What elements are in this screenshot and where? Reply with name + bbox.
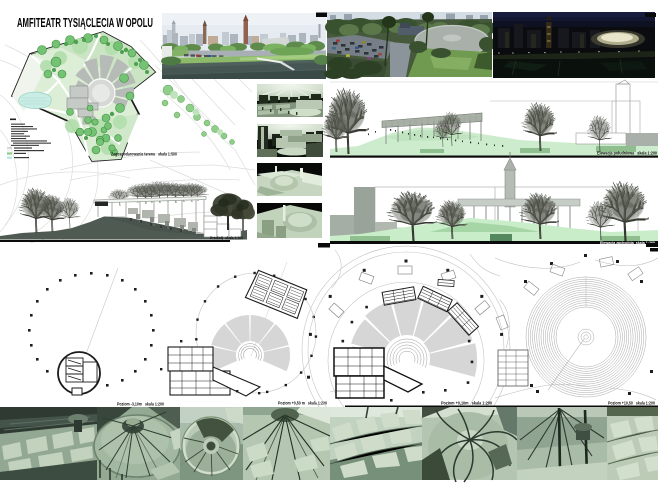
svg-text:Poziom +10,50 skala 1:200: Poziom +10,50 skala 1:200 [608,401,656,406]
svg-text:Zagospodarowanie terenu skal: Zagospodarowanie terenu skala 1:500 [111,152,177,157]
svg-text:Poziom +0,10m skala 1:200: Poziom +0,10m skala 1:200 [441,401,493,406]
svg-text:Elewacja południowa skala 1:: Elewacja południowa skala 1:200 [597,151,658,156]
svg-text:Poziom +0,50 m skala 1:200: Poziom +0,50 m skala 1:200 [278,401,328,406]
svg-text:AMFITEATR TYSIĄCLECIA W OPOLU: AMFITEATR TYSIĄCLECIA W OPOLU [17,16,153,30]
svg-text:Przekrój skala 1:200: Przekrój skala 1:200 [210,236,244,241]
svg-text:Poziom -3,10m skala 1:200: Poziom -3,10m skala 1:200 [117,402,165,407]
